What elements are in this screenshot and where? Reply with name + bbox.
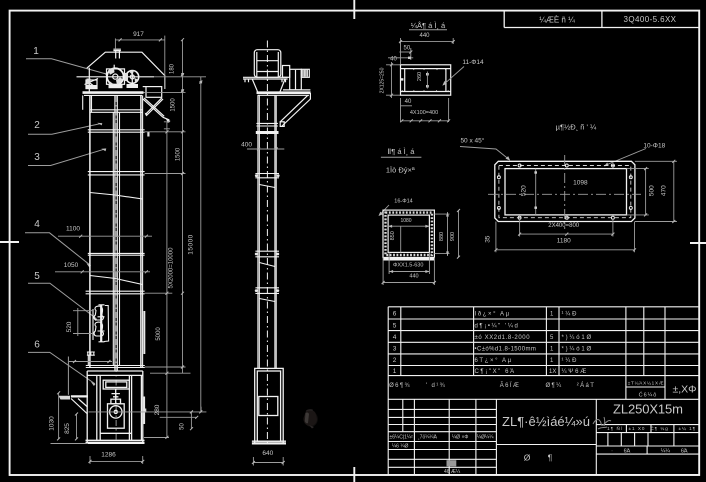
svg-text:2: 2 xyxy=(34,120,40,131)
svg-text:1050: 1050 xyxy=(64,262,79,269)
svg-text:Ⅱ¶ á Ì¸ á: Ⅱ¶ á Ì¸ á xyxy=(388,147,416,156)
svg-text:1098: 1098 xyxy=(573,179,588,186)
svg-text:±,XΦ: ±,XΦ xyxy=(672,384,696,396)
svg-text:±ó XX2d1.8-2000: ±ó XX2d1.8-2000 xyxy=(475,335,531,341)
svg-text:400: 400 xyxy=(241,142,252,149)
svg-text:880: 880 xyxy=(439,232,445,241)
svg-text:3: 3 xyxy=(393,346,397,353)
svg-text:1030: 1030 xyxy=(49,416,56,431)
svg-text:470: 470 xyxy=(661,185,668,196)
svg-text:2X400=800: 2X400=800 xyxy=(548,223,580,229)
svg-text:¹¼Ð: ¹¼Ð xyxy=(562,312,579,318)
svg-text:ΦXX1.5-630: ΦXX1.5-630 xyxy=(393,263,423,269)
svg-text:¼Ψ6Æ: ¼Ψ6Æ xyxy=(562,369,589,375)
svg-text:*)¼ó1Ø: *)¼ó1Ø xyxy=(562,335,593,341)
svg-text:±Τ¼ΆX¼1ΧÆ: ±Τ¼ΆX¼1ΧÆ xyxy=(628,380,665,385)
svg-text:¼Ø ×Φ: ¼Ø ×Φ xyxy=(452,435,468,441)
svg-text:5: 5 xyxy=(34,271,40,282)
svg-text:Ć¶ ¼g: Ć¶ ¼g xyxy=(650,425,668,431)
svg-text:11-Φ14: 11-Φ14 xyxy=(462,59,484,66)
svg-text:Ið¿×° Aµ: Ið¿×° Aµ xyxy=(475,311,511,318)
svg-text:¸7ö¼¼Ά: ¸7ö¼¼Ά xyxy=(418,435,438,441)
svg-text:4: 4 xyxy=(393,334,397,341)
svg-text:±¼ 1¶: ±¼ 1¶ xyxy=(678,426,696,431)
svg-text:6: 6 xyxy=(34,340,40,351)
svg-text:917: 917 xyxy=(133,31,144,38)
svg-text:¼ÆÈ ñ ¼: ¼ÆÈ ñ ¼ xyxy=(539,15,575,24)
svg-text:50 x 45°: 50 x 45° xyxy=(460,137,484,145)
svg-text:16-Φ14: 16-Φ14 xyxy=(394,199,412,205)
svg-text:850: 850 xyxy=(390,231,396,240)
svg-text:ZL¶·ê½ìáé¼»ú: ZL¶·ê½ìáé¼»ú xyxy=(502,414,590,429)
svg-text:*)¼ó1Ø: *)¼ó1Ø xyxy=(562,347,593,353)
svg-text:5000: 5000 xyxy=(156,327,162,341)
svg-text:5: 5 xyxy=(393,322,397,329)
svg-text:Ć6¼ô: Ć6¼ô xyxy=(639,392,658,399)
svg-text:±1 Χ0: ±1 Χ0 xyxy=(629,426,646,431)
svg-text:¼¼: ¼¼ xyxy=(661,448,671,454)
svg-text:Ã6ΪÆ: Ã6ΪÆ xyxy=(500,382,521,389)
svg-text:440: 440 xyxy=(419,33,430,39)
svg-text:2X125=250: 2X125=250 xyxy=(380,67,386,93)
svg-text:520: 520 xyxy=(66,321,73,332)
svg-text:4: 4 xyxy=(34,219,40,230)
svg-text:1286: 1286 xyxy=(101,452,116,459)
svg-text:±6¼C|1¼²: ±6¼C|1¼² xyxy=(390,435,414,441)
svg-text:35: 35 xyxy=(485,235,492,243)
svg-text:1500: 1500 xyxy=(171,98,177,112)
svg-text:d¶¡•¼" '¼d: d¶¡•¼" '¼d xyxy=(475,323,520,329)
svg-text:Ø¶¼: Ø¶¼ xyxy=(545,383,562,389)
svg-text:4X100=400: 4X100=400 xyxy=(410,110,438,116)
svg-text:180: 180 xyxy=(169,63,175,74)
svg-text:6Ά: 6Ά xyxy=(624,448,631,454)
svg-text:3: 3 xyxy=(34,152,40,163)
svg-text:825: 825 xyxy=(64,423,71,434)
svg-text:1: 1 xyxy=(393,368,397,375)
svg-text:6T¿×° Aµ: 6T¿×° Aµ xyxy=(475,358,513,364)
svg-text:10-Φ18: 10-Φ18 xyxy=(643,143,665,150)
svg-text:1080: 1080 xyxy=(400,218,411,224)
svg-text:500: 500 xyxy=(648,185,655,196)
svg-text:•C±ó%d1.8-1500mm: •C±ó%d1.8-1500mm xyxy=(475,347,537,353)
svg-text:1Ïò Ðý×ª: 1Ïò Ðý×ª xyxy=(386,166,415,175)
svg-text:6: 6 xyxy=(393,311,397,318)
svg-text:260: 260 xyxy=(417,72,423,81)
svg-text:1500: 1500 xyxy=(175,147,181,161)
svg-text:¼Å¶ á Ì¸ á: ¼Å¶ á Ì¸ á xyxy=(411,21,446,30)
svg-text:40: 40 xyxy=(405,99,412,105)
svg-text:15000: 15000 xyxy=(188,234,195,255)
svg-text:900: 900 xyxy=(450,232,456,241)
svg-text:440: 440 xyxy=(409,274,418,280)
svg-text:C¶¡"X" 6Ά: C¶¡"X" 6Ά xyxy=(475,369,516,375)
svg-text:¼6 ¼Ø: ¼6 ¼Ø xyxy=(392,444,409,450)
svg-text:3Q400-5.6XX: 3Q400-5.6XX xyxy=(624,15,677,24)
svg-text:1X: 1X xyxy=(549,369,556,375)
svg-text:' d¹¾: ' d¹¾ xyxy=(426,383,446,389)
svg-text:6Ά: 6Ά xyxy=(681,448,688,454)
svg-text:¶: ¶ xyxy=(548,453,553,463)
svg-text:¼Ø¼¼: ¼Ø¼¼ xyxy=(477,435,494,441)
svg-text:²ÁáT: ²ÁáT xyxy=(577,382,596,389)
svg-text:¹¼Ð: ¹¼Ð xyxy=(562,358,579,364)
svg-text:1100: 1100 xyxy=(66,226,80,233)
svg-text:Ø6¶¾: Ø6¶¾ xyxy=(389,383,411,389)
svg-text:µ¶½Ð¸ ñ ' ¼: µ¶½Ð¸ ñ ' ¼ xyxy=(556,123,597,132)
svg-text:1: 1 xyxy=(33,46,39,57)
svg-text:2: 2 xyxy=(393,357,397,364)
svg-text:50: 50 xyxy=(404,46,411,52)
svg-text:640: 640 xyxy=(262,450,273,457)
svg-text:1¶ Ñl: 1¶ Ñl xyxy=(607,425,623,431)
svg-text:ZL250X15m: ZL250X15m xyxy=(613,402,683,417)
svg-text:46 Æ¼: 46 Æ¼ xyxy=(444,469,461,475)
svg-text:50: 50 xyxy=(179,423,185,430)
svg-text:520: 520 xyxy=(520,185,527,196)
svg-text:40: 40 xyxy=(390,56,397,62)
svg-text:·: · xyxy=(611,448,613,454)
svg-text:1180: 1180 xyxy=(557,237,571,244)
svg-text:Ø: Ø xyxy=(524,453,531,463)
svg-text:5X2000=10000: 5X2000=10000 xyxy=(169,247,175,289)
svg-text:280: 280 xyxy=(154,404,161,415)
